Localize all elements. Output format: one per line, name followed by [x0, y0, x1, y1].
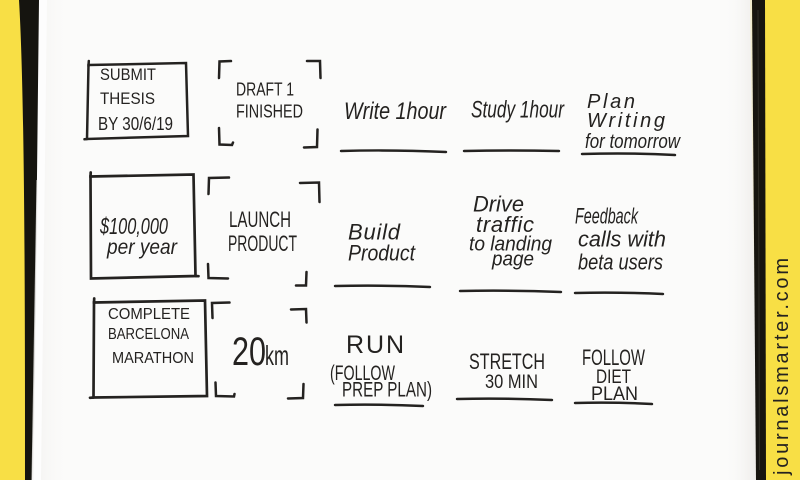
- svg-text:Study 1hour: Study 1hour: [471, 97, 565, 124]
- svg-text:for tomorrow: for tomorrow: [585, 131, 681, 153]
- svg-text:per year: per year: [106, 236, 178, 259]
- svg-text:RUN: RUN: [346, 331, 404, 359]
- svg-text:FINISHED: FINISHED: [236, 102, 303, 122]
- svg-text:COMPLETE: COMPLETE: [108, 306, 190, 323]
- svg-text:Writing: Writing: [587, 110, 665, 132]
- svg-text:THESIS: THESIS: [100, 89, 155, 108]
- svg-text:DRAFT 1: DRAFT 1: [236, 80, 294, 100]
- svg-text:30 MIN: 30 MIN: [485, 372, 538, 393]
- svg-text:page: page: [491, 249, 534, 271]
- svg-text:SUBMIT: SUBMIT: [100, 65, 156, 84]
- svg-text:STRETCH: STRETCH: [469, 349, 545, 374]
- svg-text:calls with: calls with: [578, 227, 666, 252]
- svg-text:Product: Product: [348, 241, 416, 266]
- svg-text:BY 30/6/19: BY 30/6/19: [98, 114, 173, 134]
- svg-text:PRODUCT: PRODUCT: [228, 231, 297, 256]
- svg-text:20: 20: [232, 330, 266, 374]
- svg-text:BARCELONA: BARCELONA: [108, 326, 189, 343]
- svg-text:Feedback: Feedback: [575, 204, 639, 229]
- svg-text:MARATHON: MARATHON: [112, 350, 194, 367]
- svg-text:beta users: beta users: [578, 250, 663, 275]
- svg-text:Write 1hour: Write 1hour: [344, 98, 447, 125]
- svg-text:PREP PLAN): PREP PLAN): [342, 379, 432, 402]
- svg-text:km: km: [265, 340, 289, 371]
- svg-text:LAUNCH: LAUNCH: [229, 207, 291, 232]
